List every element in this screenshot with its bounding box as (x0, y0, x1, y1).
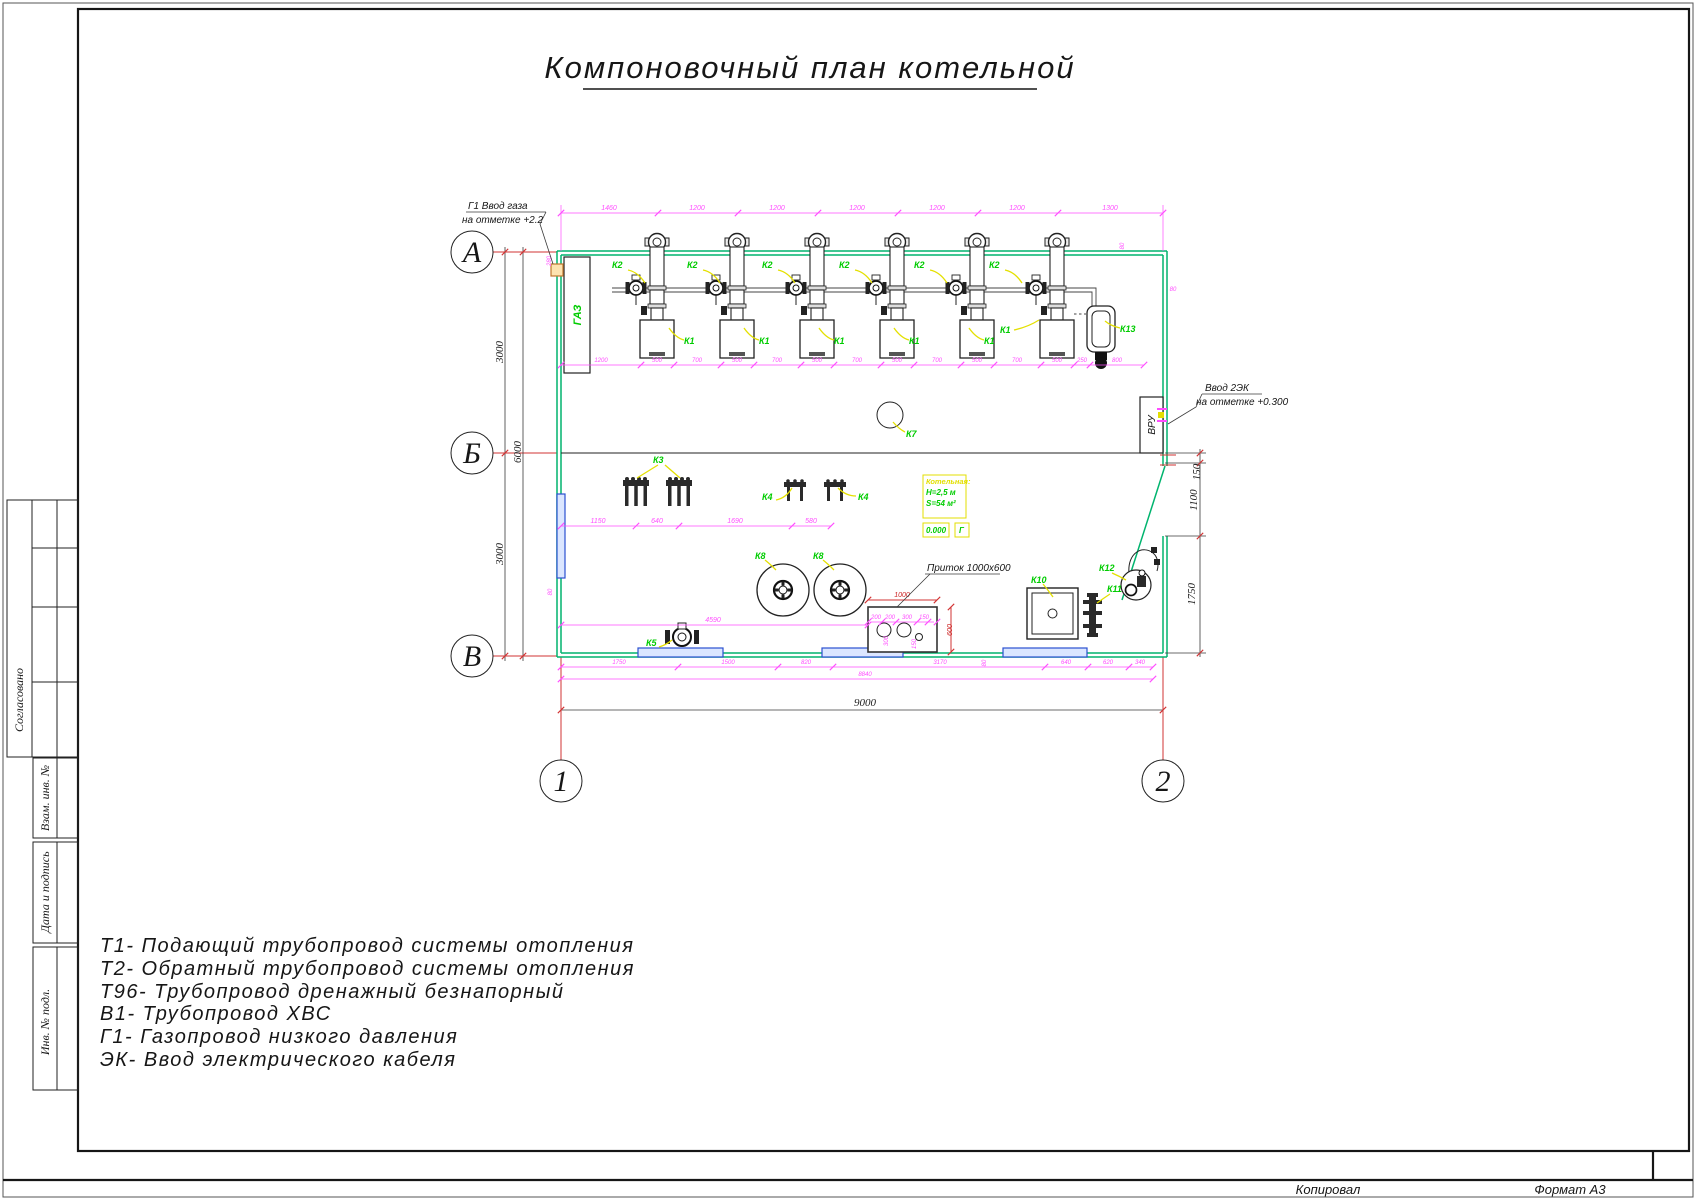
footer-copy: Копировал (1296, 1182, 1361, 1197)
floor-drain-k7 (877, 402, 903, 428)
dim-bottom-2: 820 (801, 660, 812, 666)
label-k10: К10 (1031, 575, 1047, 585)
label-k13: К13 (1120, 324, 1136, 334)
boiler-6 (1026, 234, 1075, 359)
label-k1-4: К1 (909, 336, 920, 346)
drawing-sheet: Согласовано Взам. инв. № Дата и подпись … (0, 0, 1697, 1200)
supply-air-unit (868, 607, 937, 652)
footer: Копировал Формат А3 (1296, 1182, 1607, 1197)
room-tag: Котельная: Н=2,5 м S=54 м² 0.000 Г (923, 475, 971, 537)
footer-format: Формат А3 (1534, 1182, 1606, 1197)
axis-row-a: А (461, 236, 482, 269)
label-k7: К7 (906, 429, 918, 439)
dim-right-150: 150 (1191, 463, 1203, 480)
label-k4-2: К4 (858, 492, 869, 502)
gas-inlet-note-2: на отметке +2.2 (462, 215, 543, 226)
stamp-approved: Согласовано (12, 668, 26, 732)
boiler-2 (706, 234, 755, 359)
dim-top-3: 1200 (849, 205, 865, 212)
dim-under-1: 500 (652, 358, 663, 364)
dim-under-7: 500 (892, 358, 903, 364)
dimension-ticks (502, 210, 1203, 713)
label-k2-3: К2 (762, 260, 773, 270)
room-name: Котельная: (926, 477, 971, 486)
room-level: 0.000 (926, 526, 947, 535)
dim-top-1: 1200 (689, 205, 705, 212)
vru-panel: ВРУ (1140, 397, 1167, 453)
stamp-vzam: Взам. инв. № (38, 765, 52, 831)
dim-bottom-4: 640 (1061, 660, 1072, 666)
gas-cabinet-label: ГАЗ (572, 305, 584, 326)
dim-under-2: 700 (692, 358, 703, 364)
dim-pritok-i0: 200 (870, 615, 882, 621)
room-area: S=54 м² (926, 499, 956, 508)
dim-bottom-3: 3170 (933, 660, 947, 666)
dim-under-11: 500 (1052, 358, 1063, 364)
gas-inlet-note-1: Г1 Ввод газа (468, 201, 528, 212)
dim-under-9: 500 (972, 358, 983, 364)
dim-mid-1: 640 (651, 518, 663, 525)
page-title: Компоновочный план котельной (544, 50, 1075, 85)
dim-under-3: 500 (732, 358, 743, 364)
room-g-mark: Г (959, 526, 965, 535)
legend-line-t2: Т2- Обратный трубопровод системы отоплен… (100, 958, 635, 980)
label-k8-1: К8 (755, 551, 766, 561)
dim-mid-2: 1690 (727, 518, 743, 525)
dim-top-5: 1200 (1009, 205, 1025, 212)
label-k1-5: К1 (984, 336, 995, 346)
label-k2-4: К2 (839, 260, 850, 270)
axis-col-2: 2 (1156, 765, 1171, 798)
label-k1-6: К1 (1000, 325, 1011, 335)
dim-under-0: 1200 (594, 358, 608, 364)
axis-row-b: Б (462, 437, 481, 470)
axis-col-1: 1 (554, 765, 569, 798)
axis-row-v: В (463, 640, 481, 673)
dim-bottom-0: 1750 (612, 660, 626, 666)
stamp-date-sign: Дата и подпись (38, 851, 52, 934)
window-left (557, 494, 565, 578)
dim-right-1750: 1750 (1186, 583, 1198, 606)
manifold-k3-2 (666, 477, 692, 506)
label-k5: К5 (646, 638, 658, 648)
label-k11: К11 (1107, 584, 1122, 594)
stamp-inv: Инв. № подл. (38, 989, 52, 1056)
window-bottom-3 (1003, 648, 1087, 657)
room-height: Н=2,5 м (926, 488, 956, 497)
dim-pritok-v0: 300 (884, 635, 890, 646)
label-k2-6: К2 (989, 260, 1000, 270)
manifold-k4-1 (784, 479, 806, 501)
dim-bottom-6: 340 (1135, 660, 1146, 666)
legend: Т1- Подающий трубопровод системы отоплен… (100, 935, 635, 1071)
dim-pritok-v1: 150 (912, 638, 918, 649)
drawing-canvas: Согласовано Взам. инв. № Дата и подпись … (0, 0, 1697, 1200)
dim-right-1100: 1100 (1188, 489, 1200, 511)
dim-80-bottom: 80 (982, 659, 988, 666)
dim-4590: 4590 (705, 617, 721, 624)
dim-8840: 8840 (858, 672, 872, 678)
dim-pritok-h: 600 (947, 624, 954, 636)
boiler-1 (626, 234, 675, 359)
dim-left-6000: 6000 (512, 441, 524, 464)
window-bottom-1 (638, 648, 723, 657)
tank-k8-2 (814, 564, 866, 616)
dim-top-2: 1200 (769, 205, 785, 212)
vru-label: ВРУ (1147, 414, 1158, 435)
manifold-k4-2 (824, 479, 846, 501)
heat-exchanger-k13 (1087, 306, 1115, 369)
dim-left-3000a: 3000 (494, 341, 506, 365)
dim-left-3000b: 3000 (494, 543, 506, 567)
manifold-k11 (1083, 593, 1102, 637)
dim-under-12: 250 (1076, 358, 1088, 364)
legend-line-t1: Т1- Подающий трубопровод системы отоплен… (100, 935, 634, 957)
dim-under-6: 700 (852, 358, 863, 364)
equipment: ГАЗ (551, 234, 1167, 653)
legend-line-t96: Т96- Трубопровод дренажный безнапорный (100, 981, 565, 1003)
dim-top-4: 1200 (929, 205, 945, 212)
dim-bottom-1: 1500 (721, 660, 735, 666)
dim-80-right: 80 (1170, 287, 1177, 293)
dim-9000: 9000 (854, 697, 877, 709)
label-k2-1: К2 (612, 260, 623, 270)
floor-plan: А Б В 1 2 (451, 201, 1289, 802)
dim-under-10: 700 (1012, 358, 1023, 364)
label-k1-2: К1 (759, 336, 770, 346)
dim-top-0: 1460 (601, 205, 617, 212)
dim-pritok-i2: 300 (902, 615, 913, 621)
dim-80-topright: 80 (1120, 242, 1126, 249)
dim-pritok-i1: 200 (884, 615, 896, 621)
pump-k5 (665, 623, 699, 646)
dim-mid-3: 580 (805, 518, 817, 525)
pump-unit-k12 (1121, 547, 1160, 600)
label-k8-2: К8 (813, 551, 824, 561)
dim-pritok-w: 1000 (894, 592, 910, 599)
dim-under-4: 700 (772, 358, 783, 364)
elec-inlet-note-2: на отметке +0.300 (1196, 397, 1289, 408)
dim-top-6: 1300 (1102, 205, 1118, 212)
elec-inlet-note-1: Ввод 2ЭК (1205, 383, 1250, 394)
label-k2-5: К2 (914, 260, 925, 270)
dim-under-13: 800 (1112, 358, 1123, 364)
label-k3: К3 (653, 455, 664, 465)
dim-bottom-5: 620 (1103, 660, 1114, 666)
dim-under-8: 700 (932, 358, 943, 364)
tank-k8-1 (757, 564, 809, 616)
label-k4-1: К4 (762, 492, 773, 502)
legend-line-v1: В1- Трубопровод ХВС (100, 1003, 332, 1025)
manifold-k3-1 (623, 477, 649, 506)
dim-80-left: 80 (548, 588, 554, 595)
legend-line-g1: Г1- Газопровод низкого давления (100, 1026, 458, 1048)
dim-mid-0: 1150 (590, 518, 605, 525)
boiler-3 (786, 234, 835, 359)
dim-under-5: 500 (812, 358, 823, 364)
dim-pritok-i3: 150 (919, 615, 930, 621)
label-k1-1: К1 (684, 336, 695, 346)
label-k1-3: К1 (834, 336, 845, 346)
label-k12: К12 (1099, 563, 1115, 573)
legend-line-ek: ЭК- Ввод электрического кабеля (100, 1049, 456, 1071)
supply-air-note: Приток 1000х600 (927, 563, 1011, 574)
label-k2-2: К2 (687, 260, 698, 270)
gas-cabinet: ГАЗ (564, 257, 590, 373)
stamp-column: Согласовано Взам. инв. № Дата и подпись … (7, 500, 78, 1090)
title-block: Компоновочный план котельной (544, 50, 1075, 89)
